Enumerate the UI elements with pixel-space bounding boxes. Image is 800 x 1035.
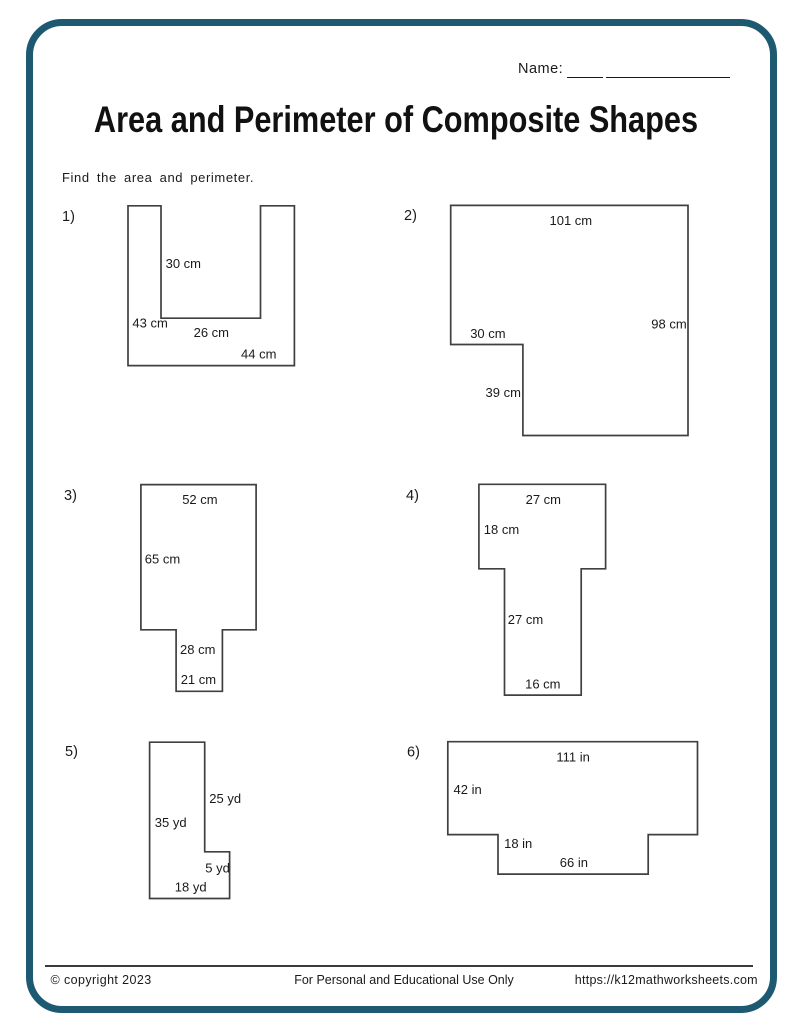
svg-text:2): 2) — [404, 208, 417, 224]
svg-text:3): 3) — [64, 488, 77, 504]
svg-text:30 cm: 30 cm — [470, 326, 505, 341]
svg-text:44 cm: 44 cm — [241, 347, 276, 362]
svg-text:4): 4) — [406, 488, 419, 504]
svg-text:65 cm: 65 cm — [145, 552, 180, 567]
svg-text:18 yd: 18 yd — [175, 880, 207, 895]
svg-text:35 yd: 35 yd — [155, 815, 187, 830]
svg-text:18 cm: 18 cm — [484, 522, 519, 537]
svg-text:27 cm: 27 cm — [508, 612, 543, 627]
svg-text:21 cm: 21 cm — [181, 672, 216, 687]
svg-text:66 in: 66 in — [560, 855, 588, 870]
svg-text:43 cm: 43 cm — [132, 316, 167, 331]
svg-text:39 cm: 39 cm — [486, 385, 521, 400]
svg-text:27 cm: 27 cm — [526, 492, 561, 507]
svg-text:30 cm: 30 cm — [166, 256, 201, 271]
svg-text:5 yd: 5 yd — [205, 861, 230, 876]
svg-text:28 cm: 28 cm — [180, 642, 215, 657]
svg-text:25 yd: 25 yd — [209, 791, 241, 806]
svg-text:6): 6) — [407, 745, 420, 761]
svg-text:18 in: 18 in — [504, 836, 532, 851]
svg-text:101 cm: 101 cm — [550, 213, 593, 228]
svg-text:98 cm: 98 cm — [651, 317, 686, 332]
svg-text:42 in: 42 in — [454, 782, 482, 797]
svg-text:16 cm: 16 cm — [525, 677, 560, 692]
svg-text:5): 5) — [65, 744, 78, 760]
svg-text:52 cm: 52 cm — [182, 492, 217, 507]
svg-text:111 in: 111 in — [556, 749, 590, 764]
svg-text:1): 1) — [62, 209, 75, 225]
svg-text:26 cm: 26 cm — [194, 325, 229, 340]
